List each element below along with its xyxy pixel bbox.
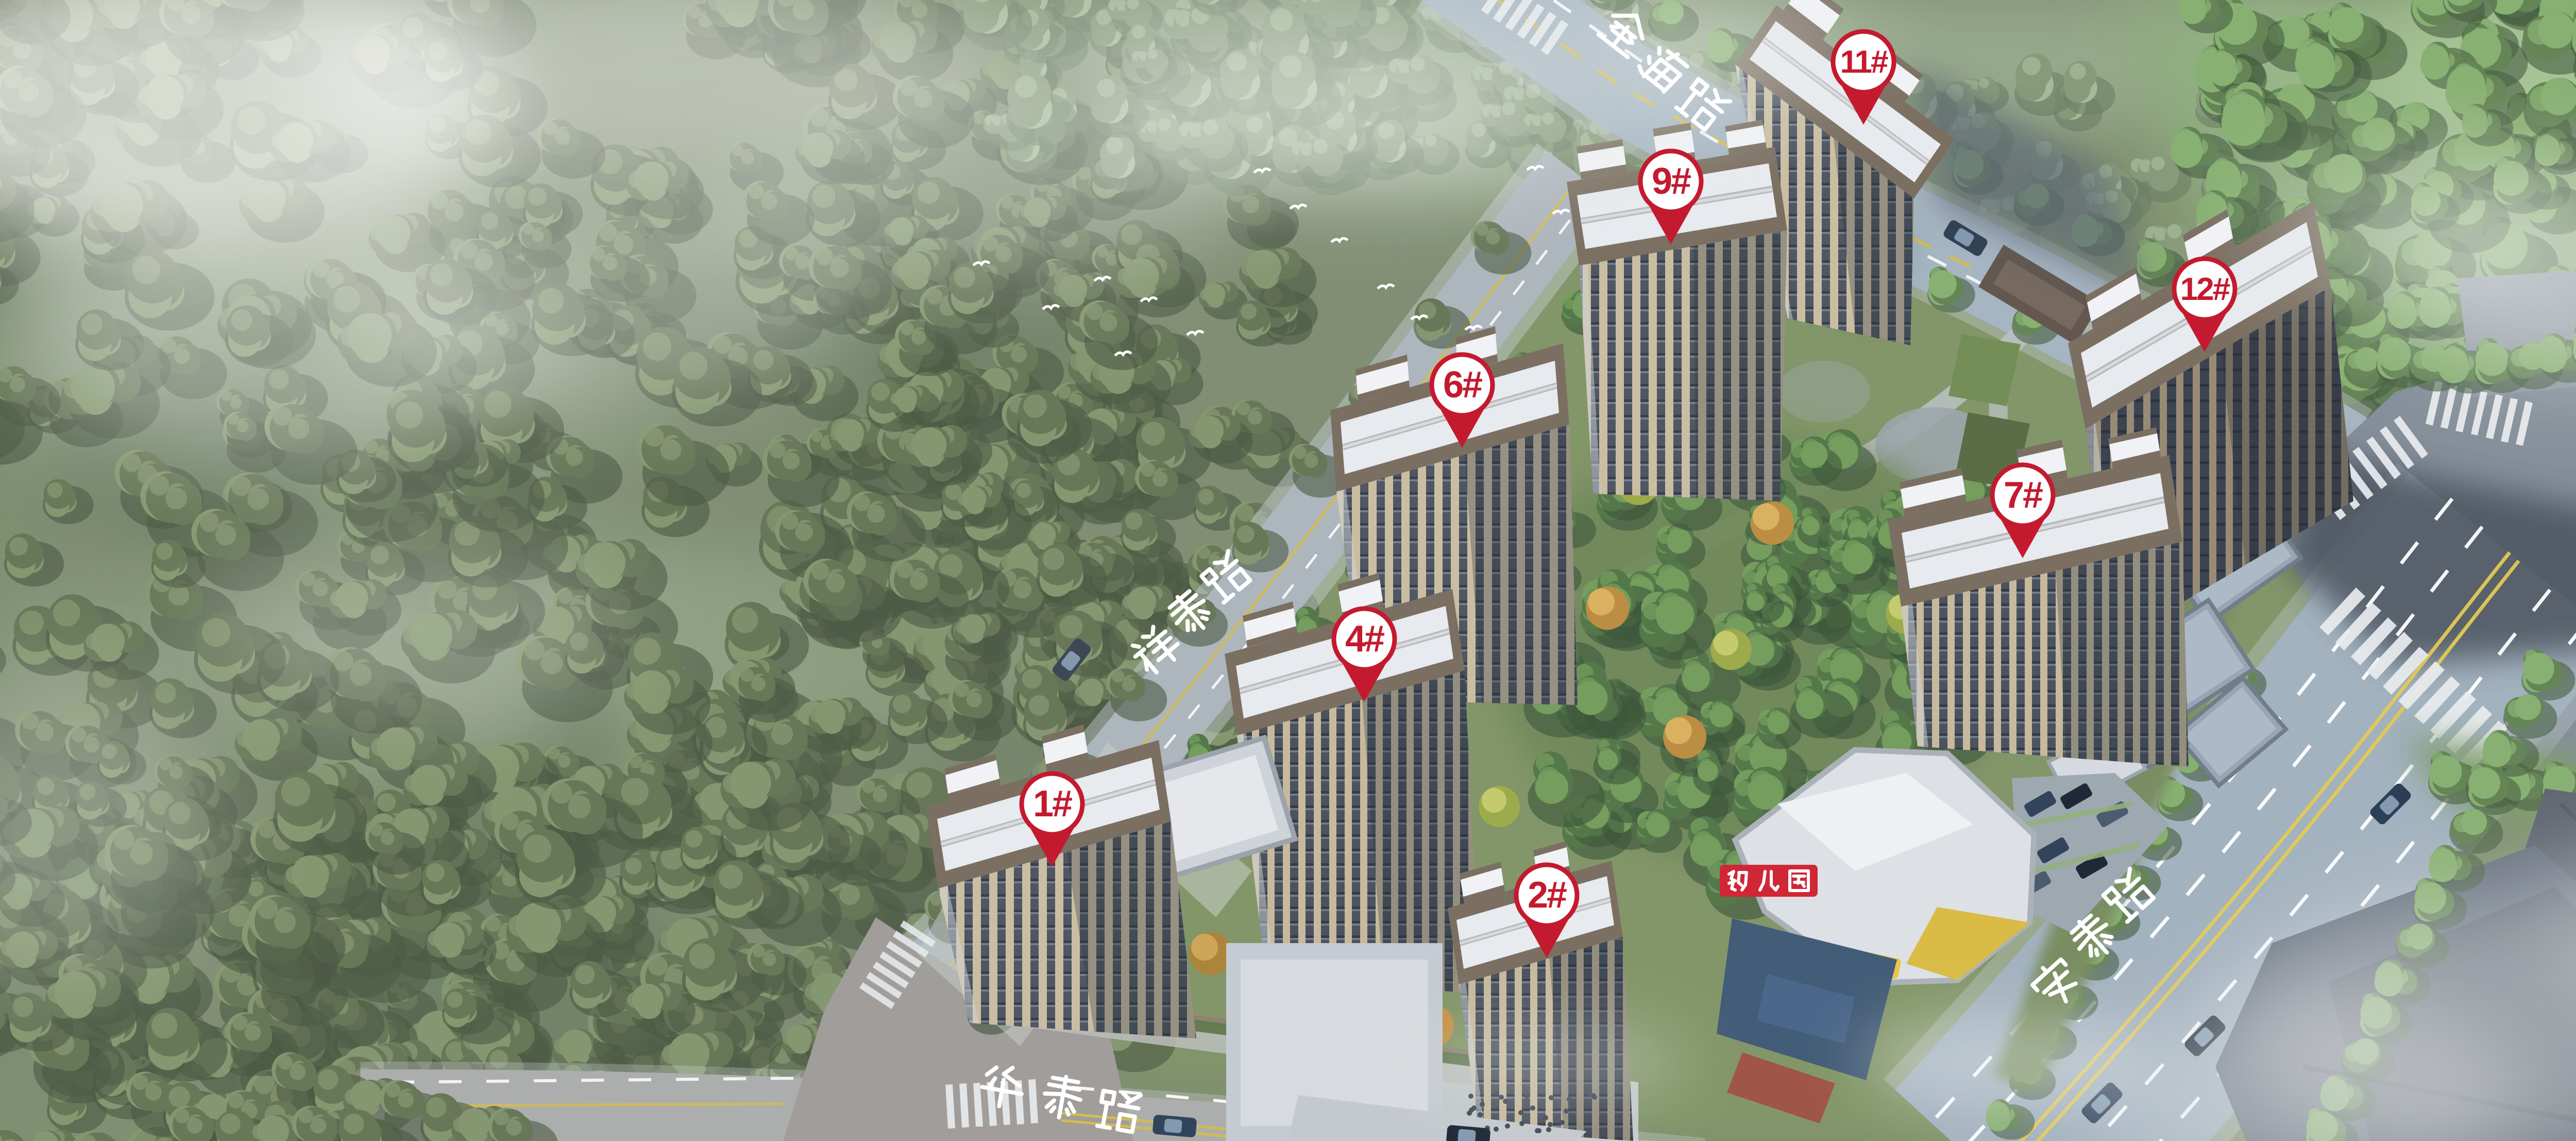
svg-text:7#: 7#	[2004, 475, 2043, 516]
svg-text:11#: 11#	[1840, 44, 1888, 80]
svg-text:1#: 1#	[1033, 783, 1072, 825]
svg-text:12#: 12#	[2180, 272, 2230, 307]
svg-text:2#: 2#	[1528, 875, 1567, 916]
svg-text:6#: 6#	[1443, 364, 1482, 406]
svg-text:4#: 4#	[1345, 618, 1384, 660]
svg-text:9#: 9#	[1652, 161, 1691, 202]
